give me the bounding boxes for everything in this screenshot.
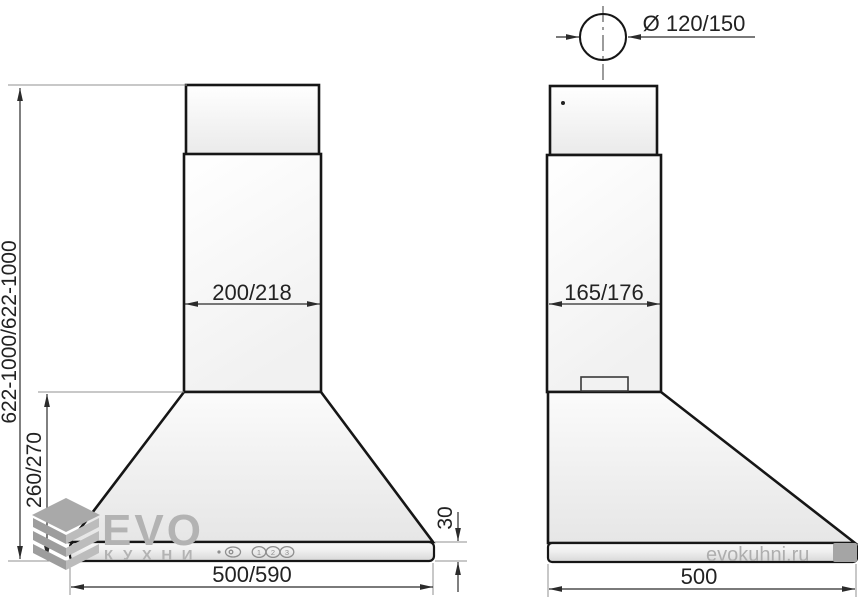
label-bottom-edge: 30 bbox=[434, 506, 457, 529]
label-base-width: 500/590 bbox=[212, 562, 292, 587]
speed2-label: 2 bbox=[271, 548, 275, 557]
speed3-label: 3 bbox=[285, 548, 289, 557]
side-base-edge bbox=[548, 543, 857, 562]
side-hood-canopy bbox=[548, 392, 855, 543]
front-chimney-lower-section bbox=[184, 154, 321, 392]
front-view bbox=[70, 85, 434, 561]
watermark-block bbox=[833, 543, 857, 562]
watermark-brand-sub: КУХНИ bbox=[104, 547, 202, 564]
hood-dimension-drawing: 1 2 3 622-100 bbox=[0, 0, 858, 600]
drawing-canvas: 1 2 3 622-100 bbox=[0, 0, 858, 600]
label-total-height: 622-1000/622-1000 bbox=[0, 240, 21, 423]
label-base-depth: 500 bbox=[681, 564, 718, 589]
side-chimney-lower-section bbox=[547, 155, 661, 392]
label-chimney-depth: 165/176 bbox=[564, 280, 644, 305]
watermark-site: evokuhni.ru bbox=[706, 544, 809, 566]
label-chimney-width: 200/218 bbox=[212, 280, 292, 305]
label-duct-diameter: Ø 120/150 bbox=[643, 11, 746, 36]
side-chimney-upper-section bbox=[550, 86, 657, 155]
label-hood-height: 260/270 bbox=[23, 432, 46, 508]
power-dot-icon bbox=[217, 550, 220, 553]
speed1-label: 1 bbox=[257, 548, 261, 557]
front-chimney-upper-section bbox=[186, 85, 319, 155]
mounting-bracket bbox=[581, 377, 628, 391]
screw-dot bbox=[561, 101, 565, 105]
